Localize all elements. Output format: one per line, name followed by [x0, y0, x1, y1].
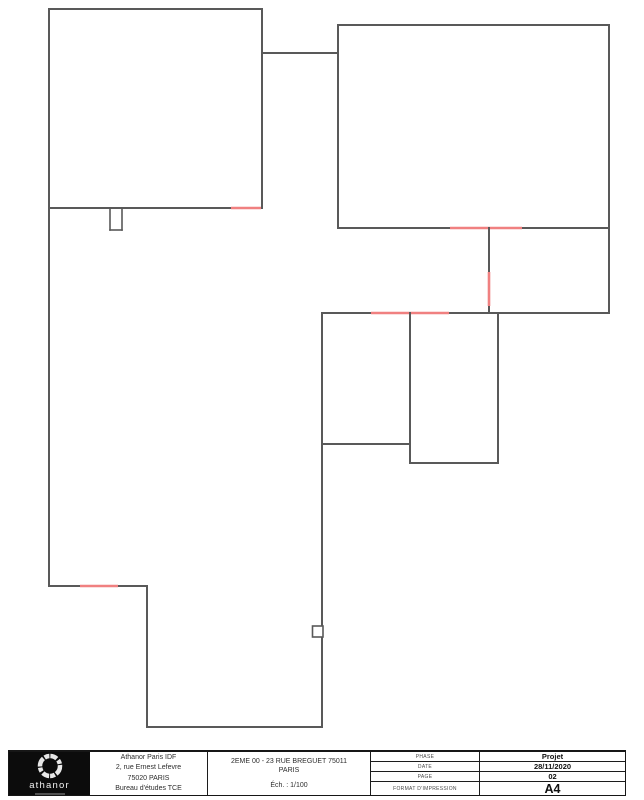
logo: athanor: [9, 752, 90, 795]
company-city: 75020 PARIS: [90, 774, 207, 785]
floor-plan: [0, 0, 644, 745]
info-row-date: DATE 28/11/2020: [371, 762, 625, 772]
company-street: 2, rue Ernest Lefevre: [90, 763, 207, 774]
logo-tagline: [35, 793, 65, 795]
project-title-cell: 2EME 00 - 23 RUE BREGUET 75011 PARIS Éch…: [208, 752, 371, 795]
info-row-format: FORMAT D'IMPRESSION A4: [371, 782, 625, 796]
project-title-line1: 2EME 00 - 23 RUE BREGUET 75011: [208, 757, 370, 766]
company-name: Athanor Paris IDF: [90, 753, 207, 764]
format-value: A4: [480, 782, 625, 796]
phase-label: PHASE: [371, 752, 480, 761]
drawing-sheet: athanor Athanor Paris IDF 2, rue Ernest …: [0, 0, 644, 800]
openings-layer: [80, 208, 522, 586]
project-title-line2: PARIS: [208, 766, 370, 775]
page-label: PAGE: [371, 772, 480, 781]
info-table: PHASE Projet DATE 28/11/2020 PAGE 02 FOR…: [371, 752, 625, 795]
date-value: 28/11/2020: [480, 762, 625, 771]
walls-layer: [49, 9, 609, 727]
drawing-scale: Éch. : 1/100: [208, 781, 370, 790]
brand-name: athanor: [29, 781, 70, 791]
date-label: DATE: [371, 762, 480, 771]
company-info: Athanor Paris IDF 2, rue Ernest Lefevre …: [90, 752, 208, 795]
info-row-phase: PHASE Projet: [371, 752, 625, 762]
title-block: athanor Athanor Paris IDF 2, rue Ernest …: [8, 750, 626, 796]
page-value: 02: [480, 772, 625, 781]
info-row-page: PAGE 02: [371, 772, 625, 782]
phase-value: Projet: [480, 752, 625, 761]
company-office: Bureau d'études TCE: [90, 784, 207, 795]
wall-box: [313, 626, 324, 637]
athanor-logo-icon: [35, 752, 65, 780]
format-label: FORMAT D'IMPRESSION: [371, 782, 480, 796]
